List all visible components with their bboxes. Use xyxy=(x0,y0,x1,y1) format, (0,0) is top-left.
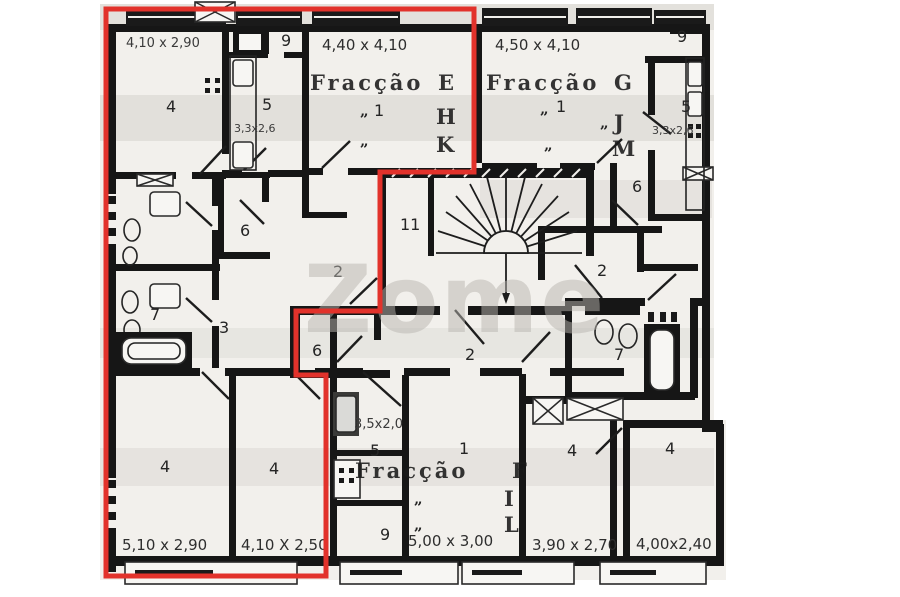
room-label: 6 xyxy=(632,177,642,196)
dim-label: 4,10 x 2,90 xyxy=(126,36,200,51)
room-label: 4 xyxy=(160,457,170,476)
room-label: 4 xyxy=(166,97,176,116)
room-label: 11 xyxy=(400,215,420,234)
fraction-letter-m: M xyxy=(612,136,635,161)
fraction-letter-i: I xyxy=(504,486,514,511)
fraction-g-title: Fracção xyxy=(486,70,599,95)
dim-label: 4,00x2,40 xyxy=(636,535,712,553)
dim-label: 4,10 X 2,50 xyxy=(241,536,328,554)
fraction-g-letter: G xyxy=(614,70,632,95)
room-label: 9 xyxy=(380,525,390,544)
dim-label: 4,40 x 4,10 xyxy=(322,36,407,54)
ditto-mark: „ xyxy=(360,132,369,150)
fraction-letter-j: J xyxy=(612,110,624,135)
ditto-mark: „ xyxy=(544,136,553,154)
room-label: 7 xyxy=(150,305,160,324)
room-label: 6 xyxy=(240,221,250,240)
room-label: 4 xyxy=(269,459,279,478)
zome-watermark: Zome xyxy=(304,246,606,355)
fraction-e-letter: E xyxy=(438,70,454,95)
dim-label: 3,5x2,0 xyxy=(354,417,403,432)
room-label: 5 xyxy=(681,97,691,116)
room-label: 1 xyxy=(459,439,469,458)
fraction-f-title: Fracção xyxy=(355,458,468,483)
dim-label: 3,3x2,6 xyxy=(652,124,694,137)
dim-label: 3,90 x 2,70 xyxy=(532,536,617,554)
fraction-letter-l: L xyxy=(504,512,519,537)
room-label: 3 xyxy=(219,318,229,337)
ditto-mark: „ xyxy=(600,114,609,132)
room-label: 4 xyxy=(567,441,577,460)
room-label: 1 xyxy=(374,101,384,120)
fraction-f-letter: F xyxy=(512,458,527,483)
fraction-e-title: Fracção xyxy=(310,70,423,95)
fraction-letter-k: K xyxy=(436,132,455,157)
ditto-mark: „ xyxy=(414,516,423,534)
floor-plan-drawing: 4 5 9 1 11 2 6 7 3 6 2 2 6 5 9 7 5 9 1 4… xyxy=(0,0,900,597)
ditto-mark: „ xyxy=(414,490,423,508)
room-label: 4 xyxy=(665,439,675,458)
room-label: 7 xyxy=(614,345,624,364)
dim-label: 5,00 x 3,00 xyxy=(408,532,493,550)
room-label: 5 xyxy=(262,95,272,114)
room-label: 9 xyxy=(281,31,291,50)
room-label: 1 xyxy=(556,97,566,116)
fraction-letter-h: H xyxy=(436,104,456,129)
floor-plan-scan: 4 5 9 1 11 2 6 7 3 6 2 2 6 5 9 7 5 9 1 4… xyxy=(0,0,900,597)
bottom-windows xyxy=(125,562,706,584)
ditto-mark: „ xyxy=(540,100,549,118)
dim-label: 4,50 x 4,10 xyxy=(495,36,580,54)
room-label: 9 xyxy=(677,27,687,46)
dim-label: 5,10 x 2,90 xyxy=(122,536,207,554)
ditto-mark: „ xyxy=(360,102,369,120)
dim-label: 3,3x2,6 xyxy=(234,122,276,135)
